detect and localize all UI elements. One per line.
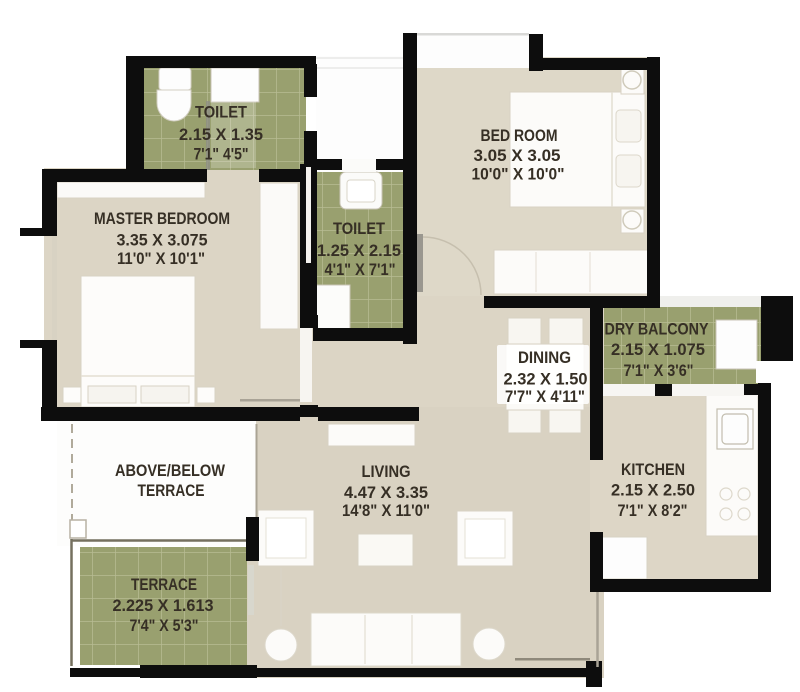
svg-text:2.225 X 1.613: 2.225 X 1.613 [113, 596, 214, 615]
svg-text:4'1" X 7'1": 4'1" X 7'1" [325, 260, 396, 279]
svg-text:1.25 X 2.15: 1.25 X 2.15 [317, 241, 401, 260]
svg-text:DRY BALCONY: DRY BALCONY [605, 320, 710, 339]
svg-text:DINING: DINING [518, 348, 571, 367]
svg-text:2.15 X 1.35: 2.15 X 1.35 [179, 125, 263, 144]
svg-text:7'7" X 4'11": 7'7" X 4'11" [505, 387, 585, 406]
svg-text:TOILET: TOILET [333, 219, 386, 238]
svg-text:11'0" X 10'1": 11'0" X 10'1" [117, 249, 205, 268]
svg-text:TERRACE: TERRACE [138, 481, 205, 500]
svg-text:MASTER BEDROOM: MASTER BEDROOM [94, 209, 230, 228]
svg-text:LIVING: LIVING [362, 462, 411, 481]
svg-text:7'1" X 3'6": 7'1" X 3'6" [624, 361, 694, 380]
svg-text:14'8" X 11'0": 14'8" X 11'0" [342, 501, 430, 520]
svg-text:3.35 X 3.075: 3.35 X 3.075 [117, 231, 208, 250]
svg-text:7'4" X 5'3": 7'4" X 5'3" [130, 616, 199, 635]
svg-text:3.05 X 3.05: 3.05 X 3.05 [474, 146, 561, 165]
svg-text:TOILET: TOILET [195, 103, 248, 122]
svg-text:KITCHEN: KITCHEN [621, 460, 685, 479]
svg-text:2.15 X 2.50: 2.15 X 2.50 [611, 481, 695, 500]
svg-text:2.15 X 1.075: 2.15 X 1.075 [611, 340, 705, 359]
svg-text:7'1" 4'5": 7'1" 4'5" [194, 145, 249, 164]
svg-text:2.32 X 1.50: 2.32 X 1.50 [504, 370, 588, 389]
svg-text:7'1" X 8'2": 7'1" X 8'2" [618, 501, 688, 520]
svg-text:ABOVE/BELOW: ABOVE/BELOW [115, 461, 226, 480]
svg-text:TERRACE: TERRACE [131, 575, 197, 594]
svg-text:4.47 X 3.35: 4.47 X 3.35 [344, 483, 428, 502]
svg-text:BED ROOM: BED ROOM [481, 126, 558, 145]
svg-text:10'0" X 10'0": 10'0" X 10'0" [472, 165, 565, 184]
